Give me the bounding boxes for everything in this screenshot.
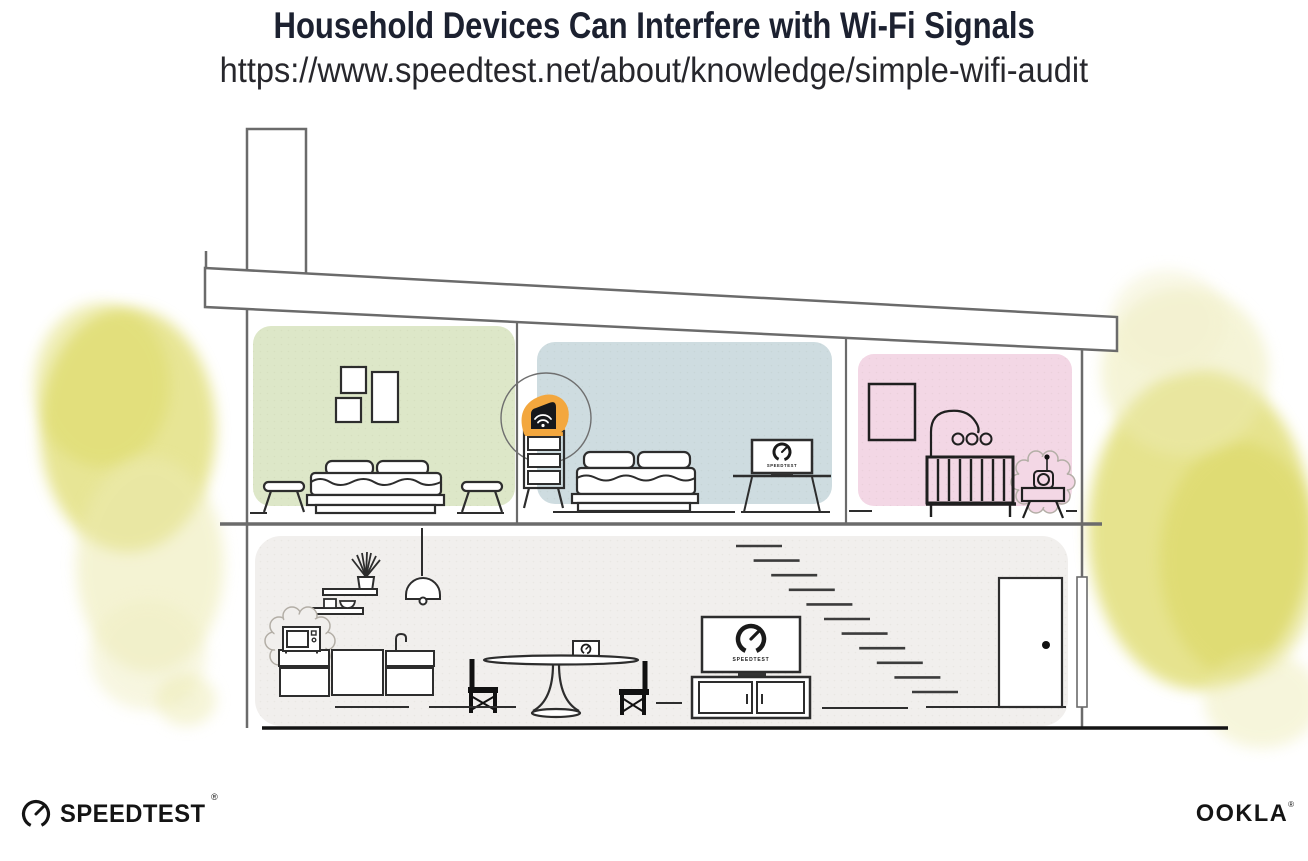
door-knob-icon [1042,641,1050,649]
downspout [1077,577,1087,707]
ookla-registered-mark: ® [1288,800,1294,809]
bedroom-laptop-brand-label: SPEEDTEST [767,463,797,468]
speedtest-gauge-logo-icon [20,798,52,830]
infographic-canvas: Household Devices Can Interfere with Wi-… [0,0,1308,861]
foliage-left [34,303,224,726]
microwave-icon [283,627,320,654]
front-door [999,578,1062,707]
speedtest-wordmark: SPEEDTEST [60,800,205,829]
house-cross-section-illustration: SPEEDTEST [0,0,1308,861]
ookla-logo: OOKLA® [1194,800,1294,828]
speedtest-logo: SPEEDTEST® [20,798,220,830]
bed-middle [572,452,698,511]
tv-brand-label: SPEEDTEST [733,657,770,663]
speedtest-registered-mark: ® [211,792,218,802]
tv-group: SPEEDTEST [702,617,800,677]
ookla-wordmark: OOKLA [1196,800,1288,828]
chimney [247,129,306,279]
media-console [692,677,810,718]
foliage-right [1088,270,1308,748]
